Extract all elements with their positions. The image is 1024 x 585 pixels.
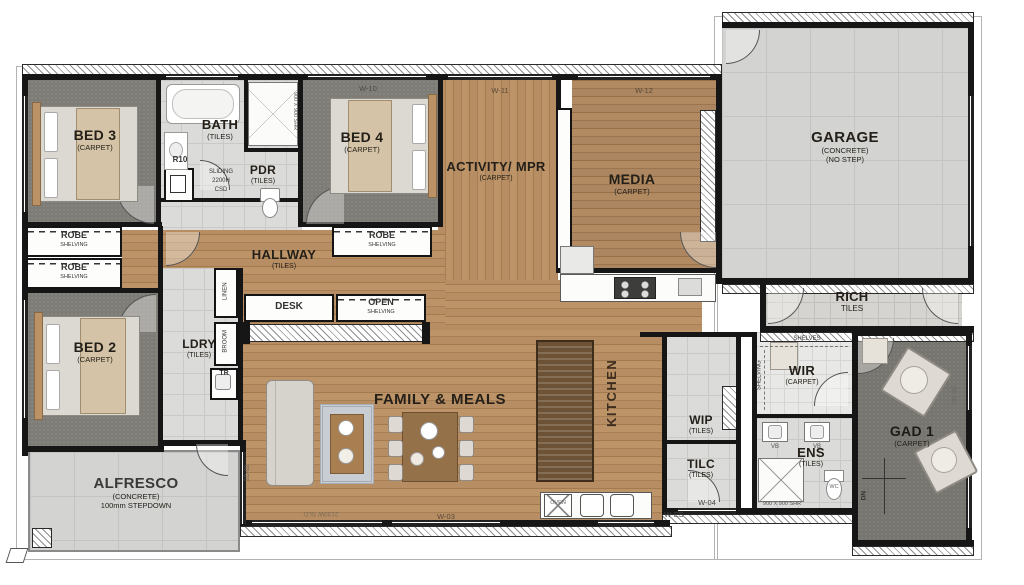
wall-media-nib-top	[556, 74, 561, 110]
wall-wip-right	[736, 332, 741, 512]
bed3-label: BED 3 (CARPET)	[45, 128, 145, 152]
dining-chair-5	[459, 440, 474, 457]
dining-chair-2	[388, 440, 403, 457]
island-bench	[536, 340, 594, 482]
w12-code: W-12	[578, 86, 710, 95]
kitchen-sink	[678, 278, 702, 296]
wall-hall-cap-left	[242, 322, 250, 344]
linen-label: LINEN	[223, 269, 230, 313]
window-bed4-w10	[308, 74, 426, 80]
bed2-pillow-2	[46, 370, 60, 410]
window-bed3-left	[22, 96, 28, 212]
dining-plate-2	[410, 452, 424, 466]
floor-plan: BED 3 (CARPET) BATH (TILES) PDR (TILES) …	[0, 0, 1024, 585]
vb1-label: VB	[764, 444, 786, 451]
r10-label: R10	[162, 156, 198, 165]
dining-chair-4	[459, 416, 474, 433]
shelving-label: SHELVING	[757, 347, 764, 403]
csd-note: SLIDING 2200H CSD	[200, 168, 242, 195]
bed4-headboard	[428, 94, 437, 198]
wir-label: WIR (CARPET)	[758, 364, 846, 386]
dn-label: DN	[860, 484, 867, 508]
wall-wip-top	[640, 332, 752, 337]
sliding-door-family	[252, 520, 382, 526]
tr-label: TR	[212, 370, 236, 378]
sd02-code: SD-02	[245, 453, 251, 493]
wall-house-right-upper	[716, 74, 722, 284]
robe-c-label: ROBE SHELVING	[336, 231, 428, 249]
dining-chair-6	[459, 464, 474, 481]
bed4-label: BED 4 (CARPET)	[312, 130, 412, 154]
wall-wir-ens	[752, 414, 856, 418]
bed4-pillow	[412, 104, 426, 144]
vb2-label: VB	[806, 444, 828, 451]
wall-bath-bed3	[156, 74, 161, 226]
robe-b-label: ROBE SHELVING	[30, 263, 118, 281]
ens-shower-label: 900 X 900 SHR	[756, 501, 808, 507]
w16-code: (W-16)	[950, 370, 956, 420]
ens-basin-right	[810, 425, 824, 439]
sofa	[266, 380, 314, 486]
r10-icon	[170, 175, 186, 193]
wall-hall-cap-right	[422, 322, 430, 344]
appliance-module	[580, 494, 604, 517]
bed2-label: BED 2 (CARPET)	[45, 340, 145, 364]
wall-ens-step	[852, 508, 858, 546]
bed4-pillow-2	[412, 150, 426, 190]
wall-ldry-right	[238, 268, 243, 446]
wall-hatch-bottom	[240, 526, 672, 537]
bed2-blanket	[80, 318, 126, 414]
wir-shelf-line-top	[760, 346, 848, 347]
window-w-es	[598, 520, 654, 526]
window-bed2-left	[22, 300, 28, 418]
wall-hatch-bed1-bottom	[852, 546, 974, 556]
w03-code: W-03	[392, 512, 500, 521]
wall-shower-pdr	[246, 148, 303, 152]
bed1-dim-line-v	[884, 458, 885, 514]
dining-plate	[420, 422, 438, 440]
coffee-table-plate-2	[338, 448, 354, 464]
window-activity-w11	[448, 74, 552, 80]
wall-wip-tilc	[666, 440, 736, 444]
alfresco-label: ALFRESCO (CONCRETE) 100mm STEPDOWN	[56, 476, 216, 510]
wall-garage-top	[722, 22, 974, 28]
window-media-w12	[578, 74, 710, 80]
hall-halfwall-hatch	[248, 324, 424, 342]
kitchen-tall-unit	[560, 246, 594, 274]
open-shelving-label: OPEN SHELVING	[338, 298, 424, 316]
hallway-label: HALLWAY (TILES)	[232, 248, 336, 270]
bath-label: BATH (TILES)	[178, 118, 262, 141]
wall-porch-left	[760, 284, 766, 332]
oven-label: OVEN	[544, 500, 572, 506]
bath-shower-label: 900 X 900 SHR	[292, 78, 298, 144]
pdr-toilet-bowl	[262, 198, 278, 218]
wall-bed2-bottom	[22, 446, 164, 452]
wall-ldry-left	[158, 226, 163, 446]
plan-corner-marker	[6, 548, 29, 563]
bed1-label: GAD 1 (CARPET)	[862, 424, 962, 448]
wall-kitchen-wip	[662, 332, 667, 512]
wall-bed1-top	[852, 330, 972, 336]
w04-code: W-04	[678, 498, 736, 507]
family-label: FAMILY & MEALS	[340, 392, 540, 408]
wall-bed4-activity	[438, 74, 443, 227]
bed3-blanket	[76, 108, 120, 200]
media-label: MEDIA (CARPET)	[582, 172, 682, 196]
w-es-code: W-ES	[652, 510, 696, 519]
activity-label: ACTIVITY/ MPR (CARPET)	[432, 160, 560, 182]
wc-label: WC	[824, 484, 844, 490]
robe-a-label: ROBE SHELVING	[30, 231, 118, 249]
appliance-module-2	[610, 494, 634, 517]
dining-chair-3	[388, 464, 403, 481]
bed2-headboard	[34, 312, 43, 420]
slider-code: 2130W SLD	[276, 510, 366, 517]
window-bed1-right-a	[966, 346, 972, 410]
broom-label: BROOM	[223, 320, 230, 362]
garage-label: GARAGE (CONCRETE) (NO STEP)	[785, 130, 905, 164]
shelves-label: SHELVES	[772, 336, 842, 343]
window-bath	[166, 74, 238, 80]
w10-code: W-10	[318, 84, 418, 93]
window-garage-right	[968, 96, 974, 246]
bed3-pillow-2	[44, 158, 58, 198]
desk-label: DESK	[246, 301, 332, 312]
bed3-headboard	[32, 102, 41, 206]
tilc-label: TILC (TILES)	[668, 458, 734, 479]
ens-basin-left	[768, 425, 782, 439]
porch-label: RICH TILES	[802, 290, 902, 313]
kitchen-label: KITCHEN	[605, 333, 619, 453]
wall-bed1-bottom	[852, 540, 974, 546]
dining-plate-3	[432, 446, 445, 459]
media-wall-nib-hatch	[700, 110, 716, 242]
wip-label: WIP (TILES)	[668, 414, 734, 435]
w11-code: W-11	[448, 86, 552, 95]
bed1-side-table	[862, 338, 888, 364]
alfresco-corner-box	[32, 528, 52, 548]
coffee-table-plate	[338, 420, 354, 436]
dining-chair-1	[388, 416, 403, 433]
cooktop	[614, 277, 656, 299]
bathtub-inner	[172, 89, 234, 119]
